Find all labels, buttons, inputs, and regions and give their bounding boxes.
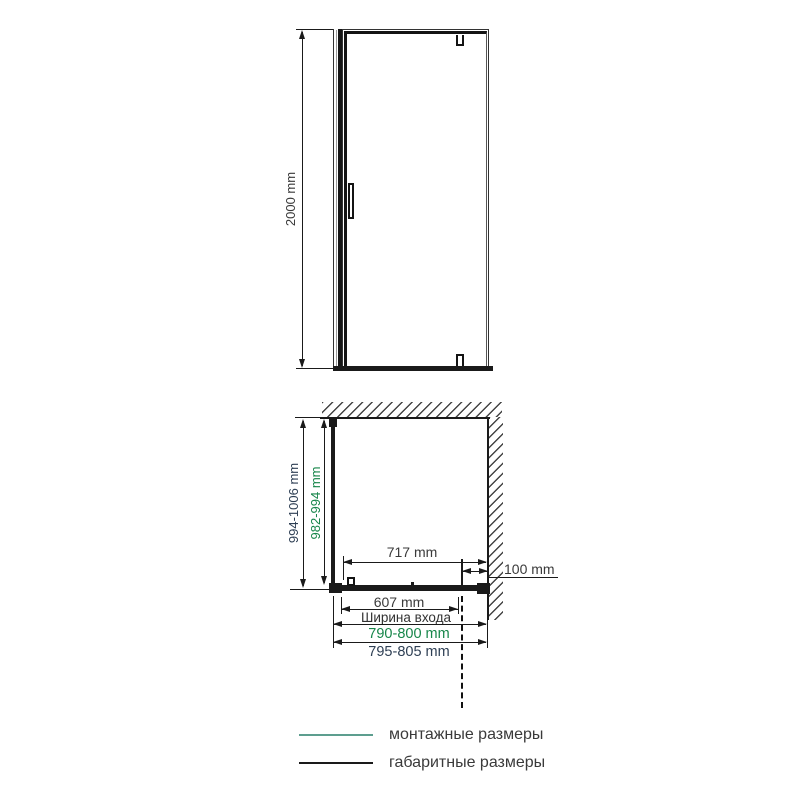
arrowhead-up: [300, 419, 306, 428]
bottom-sill: [333, 366, 493, 371]
dimension-line-height: [302, 32, 303, 366]
arrowhead-left: [333, 621, 342, 627]
arrowhead-left: [462, 568, 471, 574]
door-glass-width-label: 717 mm: [362, 544, 462, 560]
leader-underline: [488, 577, 558, 578]
entrance-width-label: 607 mm: [349, 594, 449, 610]
wall-profile-front: [333, 29, 342, 371]
wall-hatch-right: [489, 417, 503, 620]
wall-face-top: [320, 417, 490, 419]
wall-bracket-top: [456, 35, 464, 46]
wall-hatch-top: [322, 402, 502, 417]
hinge-knob: [347, 577, 355, 586]
dimension-line-mounting-depth: [324, 421, 325, 583]
extension-line: [296, 368, 334, 369]
wall-distance-label: 100 mm: [504, 561, 555, 577]
extension-line: [290, 589, 334, 590]
door-frame-inner: [344, 31, 487, 369]
dimension-line-717: [344, 562, 486, 563]
door-end-profile-right: [477, 583, 490, 594]
legend-label-mounting: монтажные размеры: [389, 726, 543, 744]
legend-label-overall: габаритные размеры: [389, 754, 545, 772]
mounting-depth-label: 982-994 mm: [308, 438, 324, 568]
extension-line: [295, 417, 321, 418]
arrowhead-right: [478, 639, 487, 645]
mounting-width-label: 790-800 mm: [344, 626, 474, 642]
arrowhead-up: [299, 30, 305, 39]
legend-line-overall: [299, 762, 373, 764]
door-end-profile-left: [329, 583, 342, 593]
wall-bracket-bottom: [456, 354, 464, 366]
arrowhead-left: [343, 559, 352, 565]
height-dimension-label: 2000 mm: [283, 134, 299, 264]
door-center-tick: [411, 582, 414, 586]
arrowhead-down: [321, 576, 327, 585]
dimension-line-overall-depth: [303, 421, 304, 586]
arrowhead-right: [478, 621, 487, 627]
arrowhead-up: [321, 419, 327, 428]
arrowhead-down: [300, 579, 306, 588]
side-panel-glass: [331, 418, 335, 588]
entrance-caption: Ширина входа: [336, 610, 476, 625]
dimension-line-mounting-width: [334, 624, 486, 625]
arrowhead-left: [333, 639, 342, 645]
legend-line-mounting: [299, 734, 373, 736]
arrowhead-down: [299, 359, 305, 368]
door-handle: [348, 183, 354, 219]
arrowhead-right: [479, 568, 488, 574]
dimension-line-overall-width: [334, 642, 486, 643]
overall-width-label: 795-805 mm: [344, 644, 474, 660]
dimension-drawing: 2000 mm: [0, 0, 800, 800]
arrowhead-right: [478, 559, 487, 565]
pivot-axis-solid: [461, 559, 463, 591]
extension-line: [487, 620, 488, 648]
overall-depth-label: 994-1006 mm: [286, 438, 302, 568]
wall-profile-inner-line: [336, 30, 337, 370]
